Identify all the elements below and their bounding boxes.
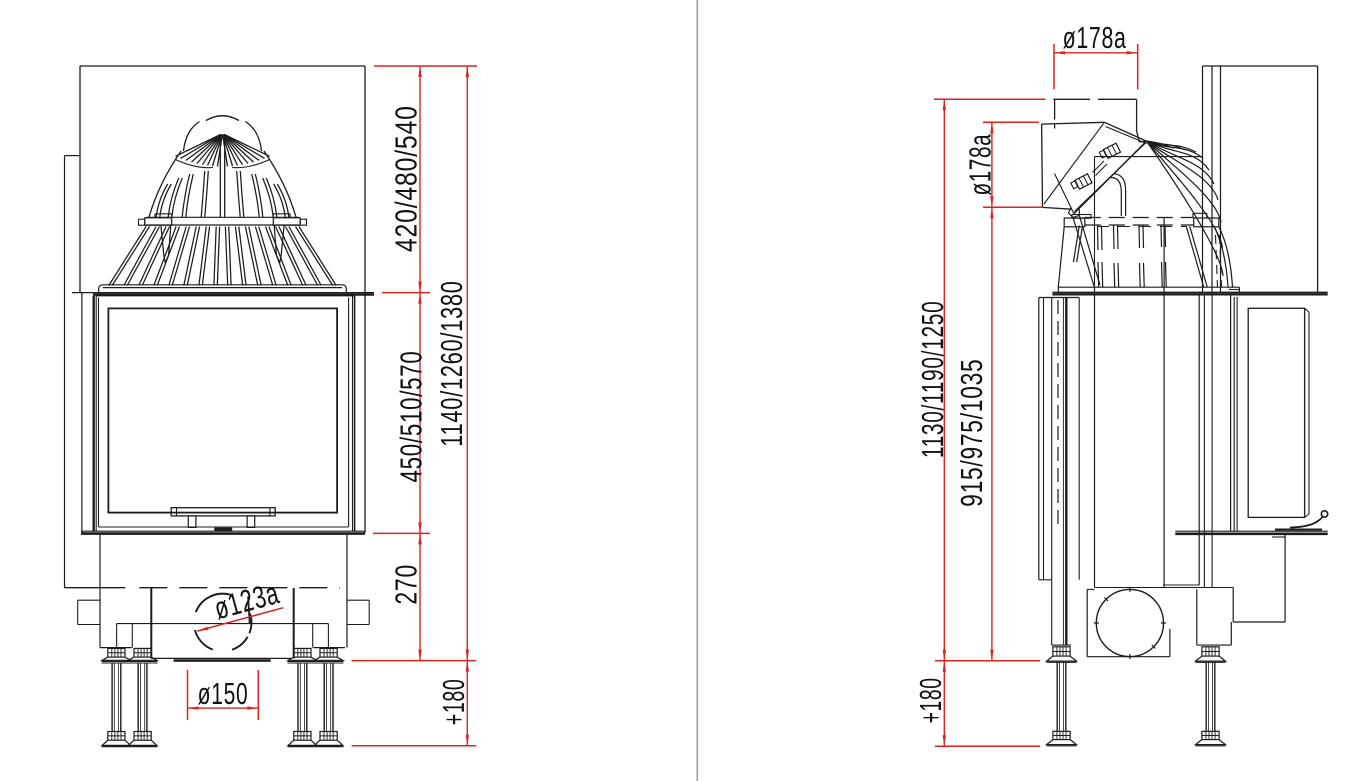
svg-text:1130/1190/1250: 1130/1190/1250 bbox=[915, 301, 950, 459]
svg-text:420/480/540: 420/480/540 bbox=[389, 105, 423, 252]
svg-text:+180: +180 bbox=[915, 677, 949, 723]
svg-text:1140/1260/1380: 1140/1260/1380 bbox=[434, 280, 469, 446]
svg-text:ø178a: ø178a bbox=[962, 134, 997, 196]
svg-text:ø123a: ø123a bbox=[210, 576, 282, 627]
svg-text:ø150: ø150 bbox=[198, 676, 249, 711]
svg-text:915/975/1035: 915/975/1035 bbox=[954, 359, 989, 507]
svg-text:450/510/570: 450/510/570 bbox=[394, 351, 428, 483]
svg-text:ø178a: ø178a bbox=[1063, 20, 1127, 55]
svg-text:+180: +180 bbox=[438, 679, 471, 726]
svg-text:270: 270 bbox=[388, 564, 423, 605]
